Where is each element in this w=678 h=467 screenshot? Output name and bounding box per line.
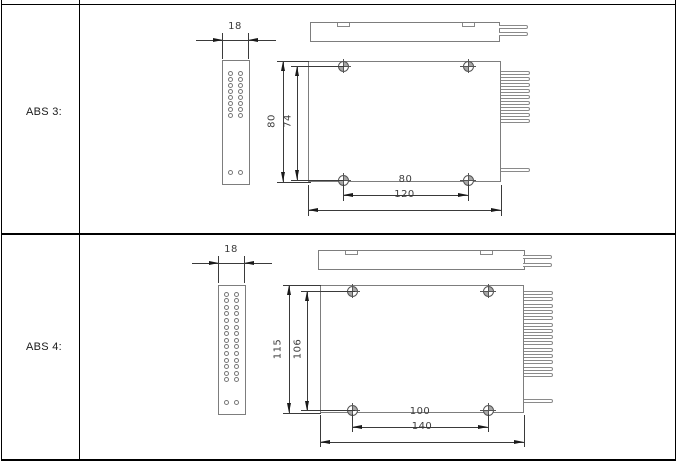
table-border-left — [1, 0, 2, 461]
dim-inner_height-label: 106 — [293, 339, 304, 360]
dim-extension-line — [343, 184, 344, 201]
side-hole — [224, 371, 229, 376]
fiber-pigtail — [524, 316, 553, 320]
lead-wire — [499, 25, 528, 29]
dim-extension-line — [218, 256, 219, 283]
side-hole — [228, 77, 233, 82]
lead-wire — [499, 32, 528, 36]
main-view-outline — [320, 285, 524, 413]
side-hole — [234, 292, 239, 297]
lid-notch — [480, 251, 493, 255]
lid-notch — [462, 23, 475, 27]
dim-extension-line — [248, 33, 249, 59]
dim-height-label: 115 — [273, 339, 284, 360]
table-row-divider — [1, 233, 676, 235]
side-hole — [238, 113, 243, 118]
fiber-pigtail — [524, 310, 553, 314]
side-hole — [224, 318, 229, 323]
dim-arrow — [308, 208, 318, 212]
dim-extension-line — [222, 33, 223, 59]
dim-inner_height-label: 74 — [283, 114, 294, 128]
side-hole — [234, 371, 239, 376]
table-border-right — [675, 0, 676, 461]
side-hole — [238, 77, 243, 82]
side-hole — [224, 305, 229, 310]
dim-extension-line — [283, 285, 321, 286]
dim-extension-line — [291, 66, 344, 67]
side-hole — [224, 325, 229, 330]
dim-arrow — [287, 403, 291, 413]
dim-extension-line — [291, 180, 344, 181]
fiber-pigtail — [524, 304, 553, 308]
dim-screw_spacing-label: 100 — [410, 406, 431, 417]
side-hole — [238, 89, 243, 94]
dim-line-vertical — [307, 291, 308, 411]
fiber-pigtail — [501, 95, 530, 99]
main-view-outline — [308, 61, 501, 182]
fiber-pigtail — [524, 323, 553, 327]
side-hole — [224, 351, 229, 356]
row-label-abs4: ABS 4: — [26, 341, 62, 353]
dim-extension-line — [320, 415, 321, 447]
dim-arrow — [352, 425, 362, 429]
dim-extension-line — [488, 414, 489, 432]
side-hole — [234, 351, 239, 356]
side-hole — [238, 83, 243, 88]
fiber-pigtail — [524, 329, 553, 333]
side-hole — [228, 170, 233, 175]
lead-wire — [523, 263, 552, 267]
dim-arrow — [514, 440, 524, 444]
dim-arrow — [491, 208, 501, 212]
dim-extension-line — [283, 413, 321, 414]
fiber-pigtail — [501, 89, 530, 93]
fiber-pigtail — [501, 77, 530, 81]
side-hole — [224, 292, 229, 297]
dim-arrow — [295, 170, 299, 180]
fiber-pigtail — [524, 291, 553, 295]
fiber-pigtail — [501, 113, 530, 117]
fiber-pigtail — [524, 297, 553, 301]
side-hole — [234, 325, 239, 330]
dim-arrow — [305, 291, 309, 301]
dim-arrow — [458, 193, 468, 197]
row-label-abs3: ABS 3: — [26, 106, 62, 118]
side-hole — [228, 113, 233, 118]
side-hole — [234, 305, 239, 310]
dim-arrow — [248, 38, 258, 42]
datasheet-table: ABS 3: ABS 4: 18807480120 18115106100140 — [0, 0, 678, 467]
fiber-pigtail — [524, 348, 553, 352]
dim-height-label: 80 — [267, 114, 278, 128]
side-hole — [228, 83, 233, 88]
lid-notch — [345, 251, 358, 255]
dim-arrow — [295, 66, 299, 76]
fiber-pigtail — [501, 107, 530, 111]
fiber-pigtail-lower — [501, 168, 530, 172]
side-view-outline — [222, 60, 250, 185]
fiber-pigtail-lower — [524, 399, 553, 403]
fiber-pigtail — [524, 367, 553, 371]
side-hole — [234, 358, 239, 363]
side-hole — [224, 338, 229, 343]
dim-extension-line — [501, 185, 502, 216]
dim-extension-line — [301, 291, 355, 292]
dim-extension-line — [277, 182, 311, 183]
lead-wire — [523, 255, 552, 259]
dim-side-width-label: 18 — [224, 244, 238, 255]
lid-notch — [337, 23, 350, 27]
dim-extension-line — [301, 410, 355, 411]
dim-line-horizontal — [320, 442, 524, 443]
side-hole — [228, 71, 233, 76]
side-hole — [228, 101, 233, 106]
dim-arrow — [244, 261, 254, 265]
dim-side-width-label: 18 — [228, 21, 242, 32]
fiber-pigtail — [524, 360, 553, 364]
fiber-pigtail — [501, 119, 530, 123]
dim-screw_spacing-label: 80 — [399, 174, 413, 185]
side-hole — [234, 318, 239, 323]
dim-line-horizontal — [308, 210, 501, 211]
dim-line-vertical — [297, 66, 298, 180]
side-hole — [234, 338, 239, 343]
fiber-pigtail — [524, 354, 553, 358]
side-hole — [224, 400, 229, 405]
side-hole — [228, 95, 233, 100]
dim-arrow — [343, 193, 353, 197]
side-hole — [238, 107, 243, 112]
table-border-bottom — [1, 459, 676, 461]
side-hole — [228, 89, 233, 94]
side-hole — [224, 358, 229, 363]
screw-crosshair-v — [468, 59, 469, 73]
dim-width-label: 120 — [394, 189, 415, 200]
screw-crosshair-v — [488, 284, 489, 298]
dim-extension-line — [524, 415, 525, 447]
fiber-pigtail — [501, 101, 530, 105]
dim-arrow — [281, 61, 285, 71]
side-hole — [228, 107, 233, 112]
side-hole — [238, 71, 243, 76]
fiber-pigtail — [501, 83, 530, 87]
dim-extension-line — [308, 185, 309, 216]
table-column-divider — [79, 0, 80, 461]
side-hole — [238, 101, 243, 106]
fiber-pigtail — [524, 341, 553, 345]
fiber-pigtail — [524, 335, 553, 339]
fiber-pigtail — [524, 373, 553, 377]
dim-line-side-width — [196, 40, 276, 41]
dim-extension-line — [277, 61, 309, 62]
fiber-pigtail — [501, 71, 530, 75]
dim-arrow — [320, 440, 330, 444]
side-view-outline — [218, 285, 246, 415]
dim-extension-line — [468, 184, 469, 201]
side-hole — [238, 170, 243, 175]
dim-arrow — [281, 172, 285, 182]
dim-arrow — [287, 285, 291, 295]
side-hole — [238, 95, 243, 100]
dim-width-label: 140 — [412, 421, 433, 432]
table-border-top — [1, 4, 676, 5]
dim-extension-line — [244, 256, 245, 283]
dim-extension-line — [352, 414, 353, 432]
dim-arrow — [478, 425, 488, 429]
side-hole — [234, 400, 239, 405]
dim-line-vertical — [289, 285, 290, 413]
dim-line-side-width — [192, 263, 272, 264]
